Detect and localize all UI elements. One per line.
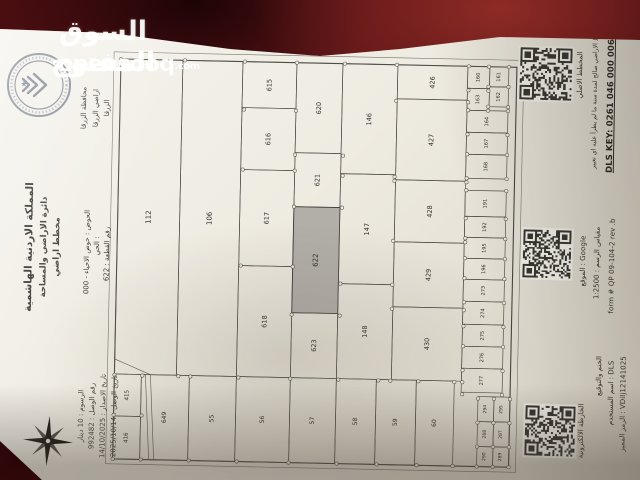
survey-node bbox=[415, 464, 418, 467]
plot-label-294: 294 bbox=[482, 405, 488, 414]
plot-label-196: 196 bbox=[481, 264, 487, 274]
survey-node bbox=[241, 168, 244, 171]
plot-label-618: 618 bbox=[260, 315, 268, 328]
survey-node bbox=[500, 393, 503, 396]
survey-node bbox=[487, 89, 490, 92]
plot-label-649: 649 bbox=[161, 412, 168, 424]
survey-node bbox=[242, 108, 245, 111]
plot-label-106: 106 bbox=[206, 211, 214, 225]
survey-node bbox=[463, 277, 466, 280]
plot-label-415: 415 bbox=[124, 389, 130, 400]
plot-number-line: رقم القطعة : 622 bbox=[103, 227, 112, 281]
plot-label-192: 192 bbox=[482, 222, 488, 232]
survey-node bbox=[177, 375, 180, 378]
survey-node bbox=[504, 237, 507, 240]
survey-node bbox=[506, 105, 509, 108]
plot-label-615: 615 bbox=[265, 79, 273, 92]
survey-node bbox=[476, 397, 479, 400]
village-line: الزرقا bbox=[103, 100, 111, 117]
survey-node bbox=[289, 377, 292, 380]
survey-node bbox=[290, 313, 293, 316]
survey-node bbox=[502, 325, 505, 328]
survey-node bbox=[394, 99, 397, 102]
survey-node bbox=[465, 181, 468, 184]
plot-label-59: 59 bbox=[392, 418, 399, 426]
survey-node bbox=[395, 63, 398, 66]
survey-node bbox=[392, 239, 395, 242]
plot-label-160: 160 bbox=[476, 73, 482, 83]
survey-node bbox=[461, 368, 464, 371]
survey-node bbox=[339, 282, 342, 285]
token-line: الرمز المميز : VDilj12141025 bbox=[618, 356, 628, 452]
survey-node bbox=[341, 174, 344, 177]
survey-node bbox=[465, 189, 468, 192]
plot-label-429: 429 bbox=[424, 269, 432, 282]
username-line: اسم المستخدم : DLS bbox=[606, 361, 615, 426]
survey-node bbox=[461, 380, 464, 383]
plot-label-290: 290 bbox=[481, 452, 487, 461]
survey-node bbox=[235, 460, 238, 463]
receipt-no-line: رقم الوصل : 992482 bbox=[87, 383, 96, 449]
survey-node bbox=[505, 189, 508, 192]
plot-label-295: 295 bbox=[498, 405, 504, 414]
survey-node bbox=[486, 109, 489, 112]
survey-node bbox=[464, 217, 467, 220]
survey-node bbox=[377, 379, 380, 382]
survey-node bbox=[462, 301, 465, 304]
form-number: form # QP 09-104-2 rev .b bbox=[607, 218, 617, 313]
fee-line: الرسوم : 10 دينار bbox=[77, 390, 86, 443]
compass-icon bbox=[21, 414, 74, 467]
plot-label-616: 616 bbox=[264, 133, 272, 146]
survey-node bbox=[389, 379, 392, 382]
kingdom-title: المملكة الاردنية الهاشمية bbox=[22, 182, 36, 312]
plot-label-168: 168 bbox=[483, 162, 489, 172]
governorate-line: محافظة الزرقا bbox=[80, 87, 89, 129]
survey-node bbox=[507, 65, 510, 68]
survey-node bbox=[462, 308, 465, 311]
survey-node bbox=[292, 205, 295, 208]
plot-label-57: 57 bbox=[309, 417, 316, 425]
survey-node bbox=[475, 445, 478, 448]
survey-node bbox=[340, 206, 343, 209]
plot-label-167: 167 bbox=[484, 139, 490, 149]
survey-node bbox=[487, 85, 490, 88]
emap-label: الخارطة الالكترونية bbox=[577, 404, 586, 459]
survey-node bbox=[393, 179, 396, 182]
survey-node bbox=[466, 101, 469, 104]
survey-node bbox=[393, 175, 396, 178]
survey-node bbox=[464, 241, 467, 244]
survey-node bbox=[466, 133, 469, 136]
stamp-label: الختم والتوقيع bbox=[595, 356, 604, 396]
plot-label-427: 427 bbox=[427, 134, 435, 147]
survey-node bbox=[507, 445, 510, 448]
survey-node bbox=[506, 109, 509, 112]
survey-node bbox=[467, 65, 470, 68]
plot-label-288: 288 bbox=[482, 430, 488, 439]
district-line: الحي : bbox=[93, 236, 101, 255]
survey-node bbox=[501, 369, 504, 372]
survey-node bbox=[451, 464, 454, 467]
original-plan-label: المخطط الاصلي bbox=[576, 51, 585, 98]
survey-node bbox=[508, 421, 511, 424]
qr-code-original-plan bbox=[517, 45, 575, 103]
survey-node bbox=[293, 153, 296, 156]
plot-label-56: 56 bbox=[259, 415, 266, 423]
survey-node bbox=[464, 237, 467, 240]
plot-label-55: 55 bbox=[208, 414, 215, 422]
survey-node bbox=[467, 89, 470, 92]
plot-label-146: 146 bbox=[365, 113, 373, 126]
survey-node bbox=[141, 374, 144, 377]
qr-code-location bbox=[520, 227, 573, 280]
survey-node bbox=[504, 217, 507, 220]
survey-node bbox=[341, 154, 344, 157]
plot-label-148: 148 bbox=[361, 325, 369, 338]
plot-label-287: 287 bbox=[498, 430, 504, 439]
survey-node bbox=[505, 153, 508, 156]
survey-node bbox=[335, 462, 338, 465]
qr-code-emap bbox=[522, 403, 577, 458]
survey-node bbox=[476, 421, 479, 424]
plot-label-58: 58 bbox=[352, 417, 359, 425]
survey-node bbox=[501, 345, 504, 348]
plot-label-273: 273 bbox=[481, 286, 487, 296]
survey-node bbox=[189, 375, 192, 378]
plot-label-289: 289 bbox=[497, 453, 503, 462]
plot-label-147: 147 bbox=[363, 223, 371, 236]
survey-node bbox=[466, 109, 469, 112]
plot-label-163: 163 bbox=[475, 95, 481, 105]
survey-node bbox=[475, 465, 478, 468]
survey-node bbox=[487, 65, 490, 68]
survey-node bbox=[243, 60, 246, 63]
survey-node bbox=[111, 457, 114, 460]
survey-node bbox=[465, 177, 468, 180]
plot-label-191: 191 bbox=[482, 199, 488, 209]
survey-node bbox=[492, 421, 495, 424]
plot-label-161: 161 bbox=[496, 72, 502, 82]
survey-node bbox=[507, 465, 510, 468]
survey-node bbox=[417, 380, 420, 383]
survey-node bbox=[187, 459, 190, 462]
survey-node bbox=[461, 344, 464, 347]
department-title: دائرة الاراضي والمساحة bbox=[38, 197, 50, 298]
survey-node bbox=[506, 133, 509, 136]
survey-node bbox=[139, 458, 142, 461]
survey-node bbox=[505, 177, 508, 180]
survey-node bbox=[119, 57, 122, 60]
plot-label-164: 164 bbox=[484, 117, 490, 127]
plot-label-621: 621 bbox=[313, 174, 321, 187]
plot-label-60: 60 bbox=[431, 419, 438, 427]
survey-node bbox=[295, 61, 298, 64]
survey-node bbox=[508, 397, 511, 400]
plot-label-162: 162 bbox=[496, 92, 502, 102]
survey-node bbox=[338, 314, 341, 317]
survey-node bbox=[492, 397, 495, 400]
location-line: الموقع : Google bbox=[579, 235, 588, 286]
doc-type-title: مخطط اراضي bbox=[51, 217, 62, 276]
plot-label-430: 430 bbox=[423, 338, 431, 351]
survey-node bbox=[507, 85, 510, 88]
plot-label-275: 275 bbox=[480, 331, 486, 341]
basin-line: الحوض : حوض الاحياء - 000 bbox=[82, 210, 91, 294]
photo-scene: 1121066156166176186206216226231461471484… bbox=[0, 0, 640, 480]
survey-node bbox=[391, 283, 394, 286]
survey-node bbox=[463, 257, 466, 260]
plot-label-416: 416 bbox=[123, 432, 129, 443]
survey-node bbox=[453, 380, 456, 383]
survey-node bbox=[140, 414, 143, 417]
dls-emblem-icon bbox=[4, 50, 74, 120]
plot-label-617: 617 bbox=[263, 212, 271, 225]
survey-node bbox=[460, 392, 463, 395]
survey-node bbox=[287, 461, 290, 464]
plot-label-428: 428 bbox=[426, 205, 434, 218]
survey-node bbox=[465, 153, 468, 156]
scale-line: مقياس الرسم : 1:2500 bbox=[592, 227, 601, 299]
survey-node bbox=[294, 109, 297, 112]
land-plan-document: 1121066156166176186206216226231461471484… bbox=[0, 0, 640, 480]
survey-node bbox=[503, 277, 506, 280]
survey-node bbox=[486, 105, 489, 108]
survey-node bbox=[337, 378, 340, 381]
plot-label-620: 620 bbox=[315, 102, 323, 115]
plot-label-277: 277 bbox=[479, 376, 485, 386]
survey-node bbox=[503, 257, 506, 260]
survey-node bbox=[239, 264, 242, 267]
plot-label-276: 276 bbox=[479, 353, 485, 363]
survey-node bbox=[390, 307, 393, 310]
survey-node bbox=[491, 465, 494, 468]
plot-label-195: 195 bbox=[482, 243, 488, 253]
plot-label-426: 426 bbox=[428, 76, 436, 89]
survey-node bbox=[237, 376, 240, 379]
survey-node bbox=[502, 301, 505, 304]
survey-node bbox=[462, 324, 465, 327]
survey-node bbox=[293, 169, 296, 172]
survey-node bbox=[291, 265, 294, 268]
survey-node bbox=[183, 59, 186, 62]
survey-node bbox=[491, 445, 494, 448]
plot-label-112: 112 bbox=[145, 210, 153, 224]
plot-label-622: 622 bbox=[312, 253, 320, 267]
directorate-line: اراضي الزرقا bbox=[92, 89, 101, 127]
plot-label-623: 623 bbox=[310, 339, 318, 352]
issue-date-line: تاريخ الاصدار : 14/10/2025 bbox=[98, 374, 107, 458]
plot-label-274: 274 bbox=[480, 308, 486, 318]
survey-node bbox=[343, 62, 346, 65]
survey-node bbox=[375, 463, 378, 466]
receipt-date-line: تاريخ الوصل : 2025/10/14 bbox=[109, 375, 118, 457]
